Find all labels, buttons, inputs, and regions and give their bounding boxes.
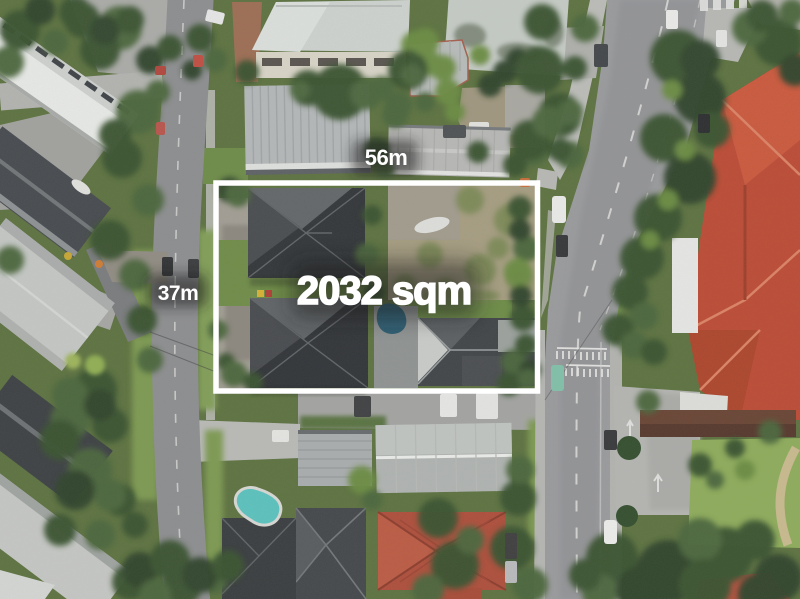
svg-text:2032 sqm: 2032 sqm <box>297 269 471 313</box>
svg-text:37m: 37m <box>158 282 199 305</box>
svg-text:56m: 56m <box>365 145 408 170</box>
